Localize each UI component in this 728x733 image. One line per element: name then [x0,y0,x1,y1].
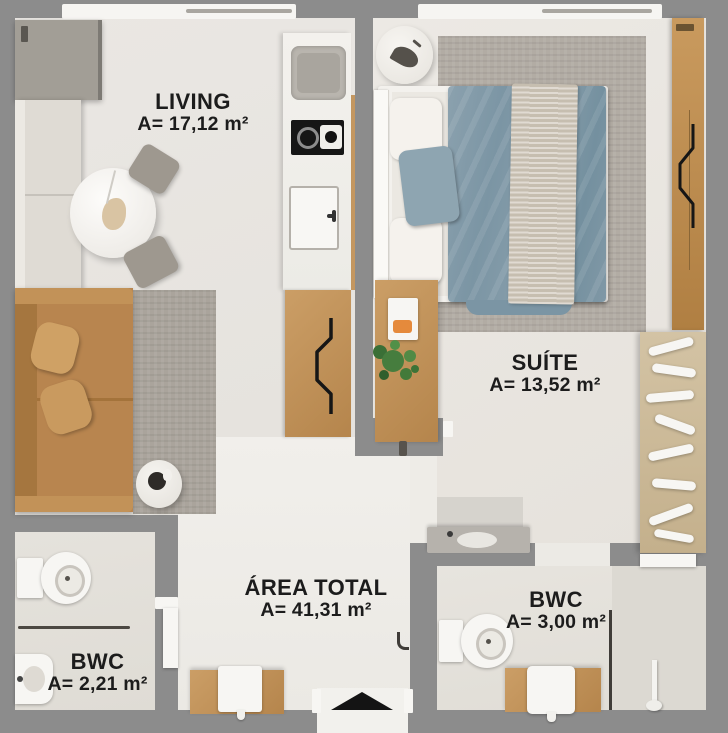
vanity-right-sink [527,666,575,714]
closet-linen-2 [652,363,697,378]
closet-linen-8 [654,529,695,544]
lamp-decor-icon [389,42,421,71]
picture-orange-detail [393,320,412,333]
closet-linen-3 [646,390,695,403]
vanity-right-knob [547,712,556,722]
door-stop-suite-entry [399,441,407,456]
toilet-right-drain [486,639,491,644]
closet-linen-5 [648,443,695,461]
towel-bar-left [18,626,130,629]
room-name-bwc-right: BWC [450,588,662,612]
door-hinge-mark [397,632,409,650]
room-area-bwc-right: A= 3,00 m² [450,612,662,633]
label-bwc-left: BWC A= 2,21 m² [20,650,175,696]
window-suite [418,4,662,19]
toilet-left-tank [17,558,43,598]
room-area-living: A= 17,12 m² [88,114,298,135]
suite-vanity-faucet-icon [447,531,453,537]
label-suite: SUÍTE A= 13,52 m² [440,351,650,397]
sofa-back-panel [15,304,37,496]
lamp-decor-stem [412,39,422,48]
burner-right-ring [325,131,337,143]
label-area-total: ÁREA TOTAL A= 41,31 m² [196,576,436,622]
burner-left-icon [297,127,319,149]
door-leaf-bwc-right [640,554,696,567]
suite-vanity-sink [457,532,497,548]
sofa-armrest-bottom [15,496,133,512]
closet-linen-6 [652,478,697,491]
washer-knob [237,710,245,720]
closet-linen-1 [648,336,695,357]
kitchen-sink-lower [289,186,339,250]
window-suite-sash-line [542,9,652,13]
desk-picture-frame [388,298,418,340]
door-jamb-suite-entry [443,421,453,437]
shower-head-icon [646,700,662,711]
wardrobe [672,18,704,330]
faucet-base-icon [332,210,336,222]
closet-linen-4 [654,413,697,436]
washer [218,666,262,712]
wardrobe-label-detail [676,24,694,31]
room-area-suite: A= 13,52 m² [440,375,650,396]
entrance-jamb-right [404,689,413,713]
pillow-blue [398,145,461,227]
window-living-sash-line [186,9,292,13]
entrance-jamb-left [312,689,321,713]
room-name-bwc-left: BWC [20,650,175,674]
pantry-handle-icon [311,316,337,416]
closet-linen-7 [648,502,694,526]
kitchen-sink-top [291,46,346,100]
label-bwc-right: BWC A= 3,00 m² [450,588,662,634]
pillow-white-bottom [390,218,442,284]
suite-vanity-counter [427,527,530,553]
sofa-caramel [15,288,133,512]
tv-cabinet [15,20,102,100]
side-table-decor-white [163,469,172,481]
headboard [374,90,389,298]
wardrobe-handle-icon [675,122,699,230]
room-name-suite: SUÍTE [440,351,650,375]
suite-vanity-backsplash [437,497,523,529]
cooktop [291,120,344,155]
pantry-door [285,290,351,437]
room-name-area-total: ÁREA TOTAL [196,576,436,600]
sofa-pillow-2 [36,376,95,438]
room-area-area-total: A= 41,31 m² [196,600,436,621]
toilet-left-seat [55,565,85,597]
plant-icon [382,350,404,372]
cabinet-detail [21,26,28,42]
side-table [136,460,182,508]
bedside-lamp-table [376,26,433,84]
toilet-left-drain [65,576,70,581]
floor-plan: LIVING A= 17,12 m² SUÍTE A= 13,52 m² ÁRE… [0,0,728,733]
window-living [62,4,296,19]
blanket-beige [508,83,578,304]
room-name-living: LIVING [88,90,298,114]
sofa-white [15,100,81,290]
sofa-armrest-top [15,288,133,304]
room-area-bwc-left: A= 2,21 m² [20,674,175,695]
burner-right-icon [320,125,342,149]
blanket-texture [508,83,578,304]
toilet-left [17,552,91,604]
sink-top-basin [297,53,340,93]
label-living: LIVING A= 17,12 m² [88,90,298,136]
bwc-right-doorway-floor [535,543,610,566]
entrance-arrow-icon [331,692,393,710]
toilet-left-bowl [41,552,91,604]
sofa-white-back [15,100,25,290]
